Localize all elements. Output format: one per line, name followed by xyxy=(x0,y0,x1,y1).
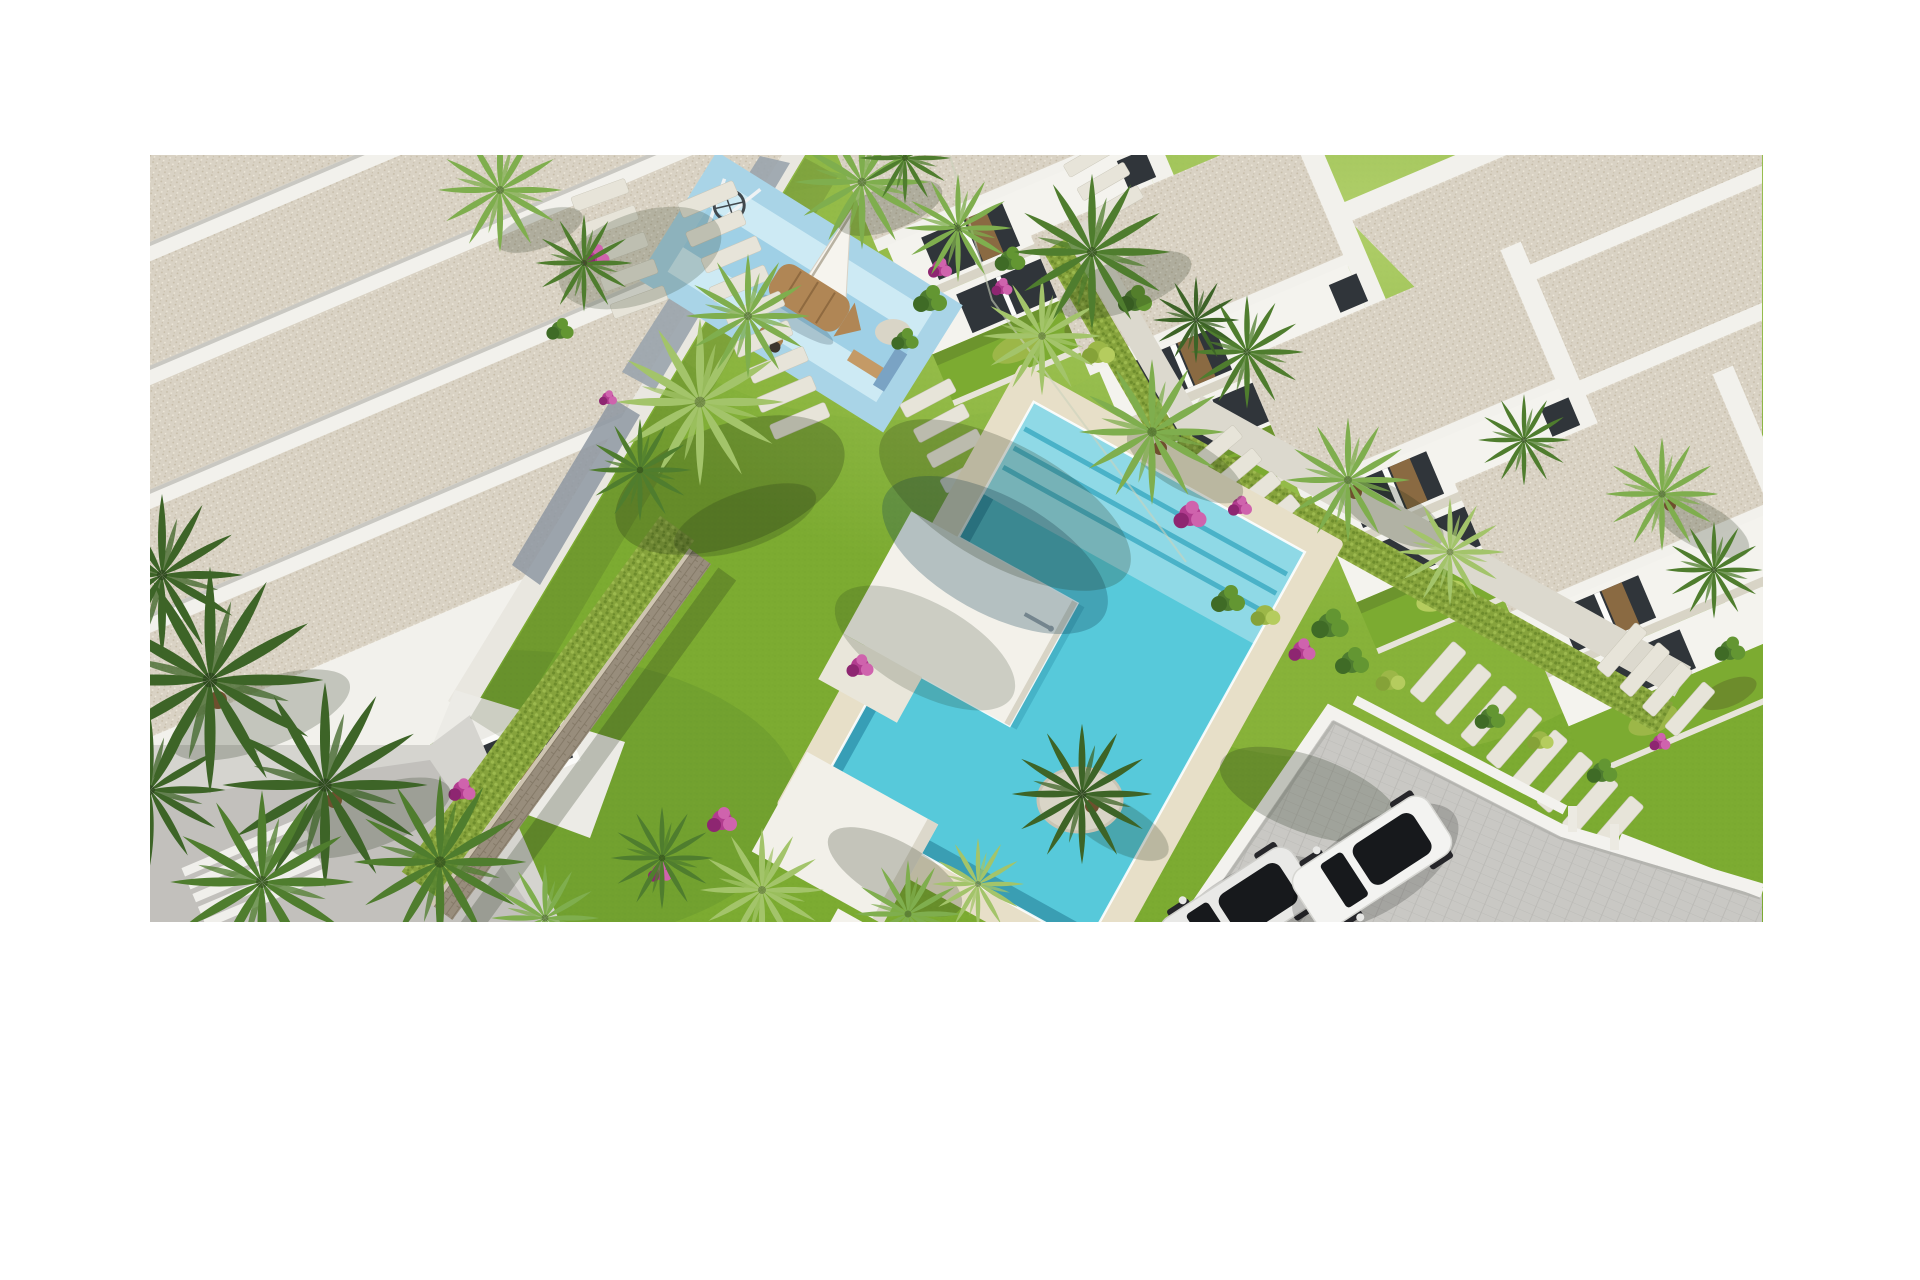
gate-post xyxy=(1610,824,1619,850)
render-scene xyxy=(0,0,1920,1280)
render-figure: Aerial 3D architectural rendering of a r… xyxy=(0,0,1920,1280)
gate-post xyxy=(1568,806,1577,832)
